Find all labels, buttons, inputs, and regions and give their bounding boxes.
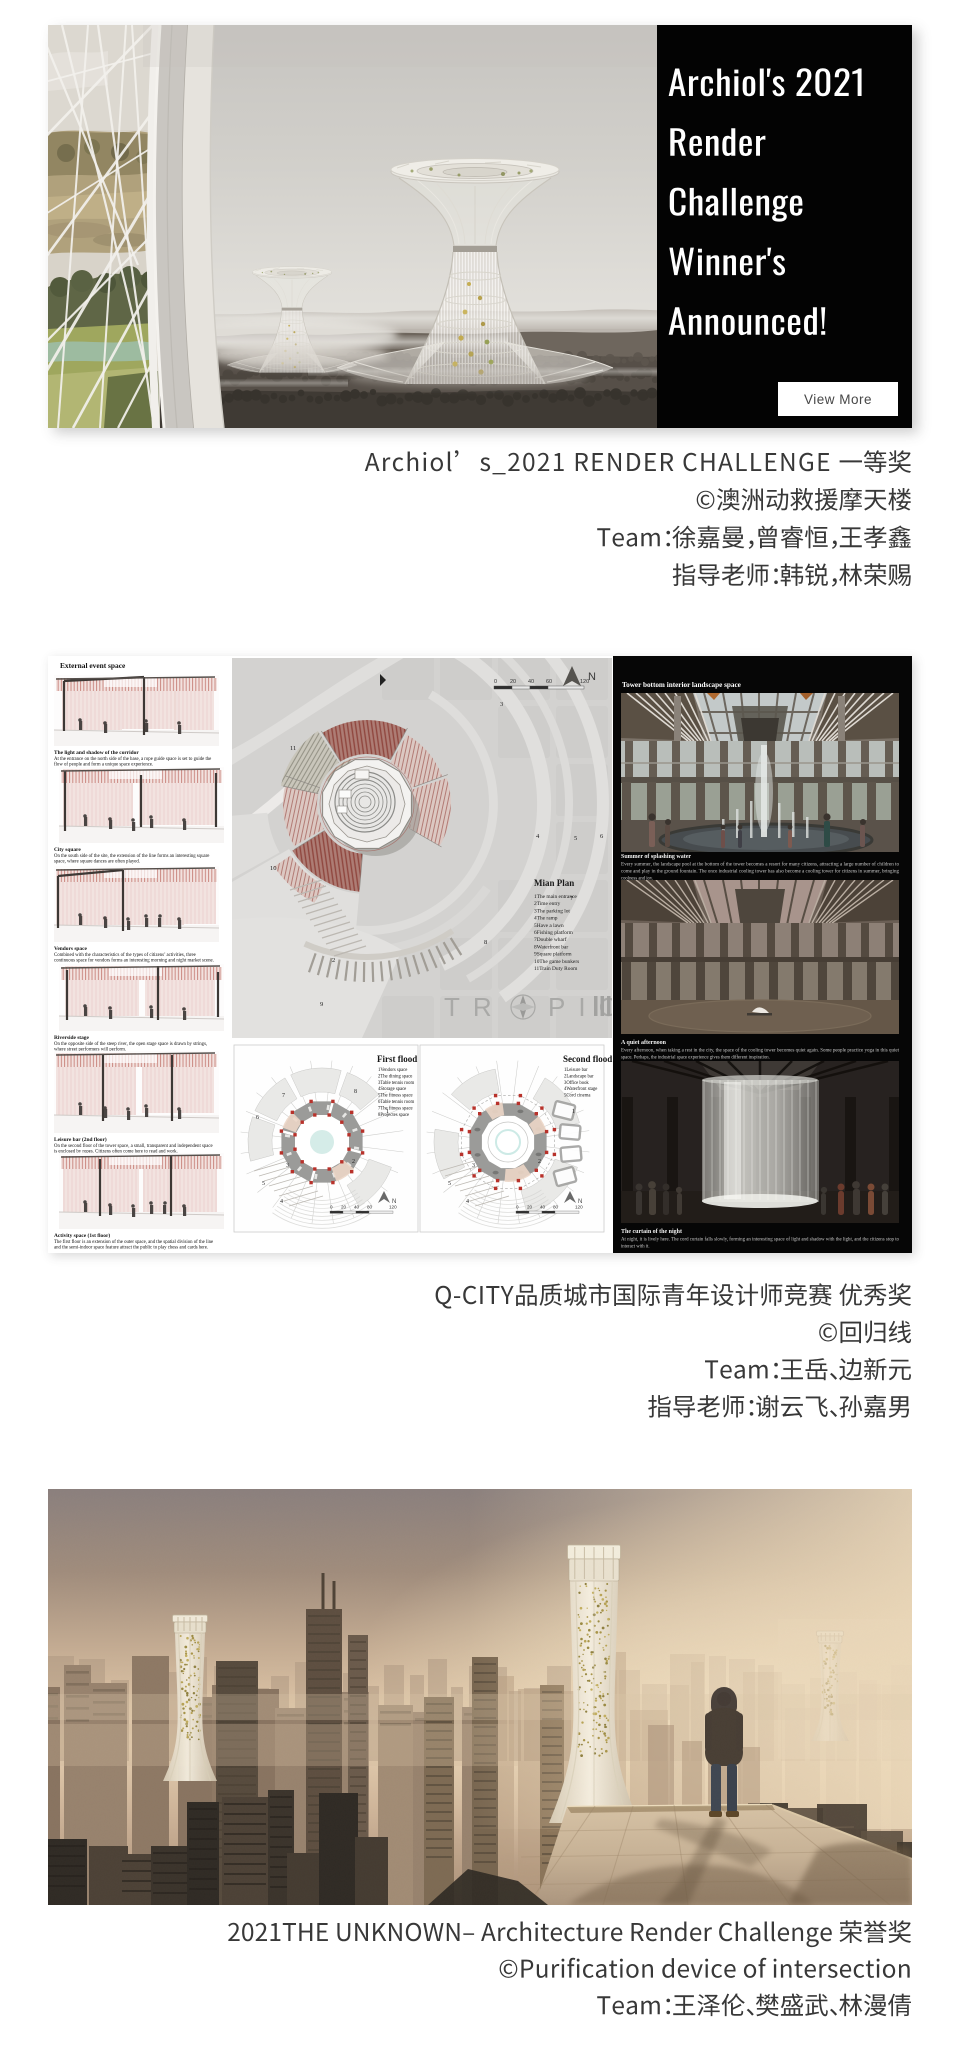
svg-text:On the south side of the site,: On the south side of the site, the exten… [54,854,209,859]
svg-text:6Fishing platform: 6Fishing platform [534,929,574,936]
svg-text:space. Perhaps, the industrial: space. Perhaps, the industrial space exp… [621,1056,770,1061]
svg-text:40: 40 [528,679,534,685]
svg-text:8Projectes space: 8Projectes space [378,1113,409,1118]
svg-text:5: 5 [574,835,577,842]
svg-text:1Leisure bar: 1Leisure bar [564,1068,588,1073]
svg-text:space, where square dances are: space, where square dances are often pla… [54,860,140,865]
svg-text:TR: TR [444,992,505,1022]
svg-text:5Cord cinema: 5Cord cinema [564,1094,591,1099]
svg-text:4: 4 [466,1199,469,1205]
svg-text:2: 2 [538,1159,541,1165]
svg-text:120: 120 [389,1205,397,1210]
svg-text:N: N [578,1199,582,1205]
svg-text:On the opposite side of the st: On the opposite side of the steep river,… [54,1042,207,1047]
svg-text:0: 0 [516,1205,519,1210]
svg-text:2: 2 [352,1159,355,1165]
svg-text:7The fitness space: 7The fitness space [378,1106,413,1111]
svg-text:continuous space for vendors f: continuous space for vendors forms an in… [54,959,214,964]
svg-text:1: 1 [386,1109,389,1115]
svg-text:4Storage space: 4Storage space [378,1087,406,1092]
svg-text:2Time entry: 2Time entry [534,901,561,907]
svg-text:2The dining space: 2The dining space [378,1074,412,1079]
svg-text:Mian Plan: Mian Plan [534,878,574,888]
svg-text:A quiet afternoon: A quiet afternoon [621,1040,667,1046]
svg-text:11Train Duty Room: 11Train Duty Room [534,966,578,972]
svg-text:Every summer, the landscape po: Every summer, the landscape pool at the … [621,863,900,868]
svg-text:2: 2 [332,957,335,964]
svg-text:interact with it.: interact with it. [621,1245,650,1250]
svg-text:City square: City square [54,847,81,853]
svg-text:120: 120 [580,679,589,685]
svg-text:flow of people and form a uniq: flow of people and form a unique space e… [54,763,153,768]
svg-text:20: 20 [527,1205,533,1210]
svg-text:40: 40 [540,1205,546,1210]
svg-text:3Office book: 3Office book [564,1081,589,1086]
svg-text:60: 60 [546,679,552,685]
svg-text:Vendors space: Vendors space [54,946,88,952]
svg-text:0: 0 [494,679,497,685]
svg-text:Second flood: Second flood [563,1054,612,1064]
svg-text:3Table tennis room: 3Table tennis room [378,1081,414,1086]
svg-text:20: 20 [341,1205,347,1210]
svg-text:10The game bunkers: 10The game bunkers [534,959,579,965]
svg-text:40: 40 [354,1205,360,1210]
svg-text:come and play in the ground fo: come and play in the ground fountain. Th… [621,870,900,875]
svg-text:At night, it is lively here. T: At night, it is lively here. The cord cu… [621,1238,900,1243]
svg-text:7Double wharf: 7Double wharf [534,936,567,943]
svg-text:3The parking lot: 3The parking lot [534,908,570,914]
svg-text:3: 3 [472,1163,475,1169]
svg-text:1: 1 [572,1109,575,1115]
svg-text:First flood: First flood [377,1054,417,1064]
svg-text:6Table tennis room: 6Table tennis room [378,1100,414,1105]
svg-text:5Have a lawn: 5Have a lawn [534,923,564,929]
svg-text:0: 0 [330,1205,333,1210]
svg-text:4: 4 [280,1199,283,1205]
svg-text:N: N [588,671,596,683]
svg-text:120: 120 [575,1205,583,1210]
svg-text:At the entrance on the north s: At the entrance on the north side of the… [54,757,211,762]
svg-text:Leisure bar (2nd floor): Leisure bar (2nd floor) [54,1136,107,1143]
svg-text:2Landscape bar: 2Landscape bar [564,1074,594,1079]
svg-text:Every afternoon, when taking a: Every afternoon, when taking a rest in t… [621,1049,900,1054]
svg-text:1Vendors space: 1Vendors space [378,1068,407,1073]
svg-text:5The fitness space: 5The fitness space [378,1094,413,1099]
svg-text:4The ramp: 4The ramp [534,916,558,922]
svg-text:5: 5 [448,1181,451,1187]
svg-text:4Waterfront stage: 4Waterfront stage [564,1087,597,1092]
svg-text:80: 80 [553,1205,559,1210]
svg-text:9Square platform: 9Square platform [534,951,572,958]
svg-text:and the semi-indoor space feat: and the semi-indoor space feature attrac… [54,1246,208,1251]
svg-text:3: 3 [500,701,503,708]
svg-text:The first floor is an extensio: The first floor is an extension of the o… [54,1240,213,1245]
svg-text:80: 80 [367,1205,373,1210]
svg-text:Riverside stage: Riverside stage [54,1035,89,1041]
svg-text:8Waterfront bar: 8Waterfront bar [534,943,568,950]
svg-text:3: 3 [286,1163,289,1169]
svg-text:The curtain of the night: The curtain of the night [621,1229,682,1235]
svg-text:8: 8 [354,1089,357,1095]
svg-text:Summer of splashing water: Summer of splashing water [621,854,691,860]
svg-text:Activity space (1st floor): Activity space (1st floor) [54,1232,110,1239]
svg-text:N: N [392,1199,396,1205]
svg-text:External event space: External event space [60,661,126,670]
svg-text:5: 5 [262,1181,265,1187]
svg-text:Combined with the characterist: Combined with the characteristics of the… [54,953,196,958]
svg-text:6: 6 [256,1115,259,1121]
svg-text:Tower bottom interior landscap: Tower bottom interior landscape space [622,681,741,689]
svg-text:7: 7 [282,1093,285,1099]
svg-text:11: 11 [290,745,296,752]
svg-text:20: 20 [510,679,516,685]
svg-text:8: 8 [484,939,487,946]
svg-text:9: 9 [320,1001,323,1008]
svg-text:10: 10 [270,865,277,872]
svg-text:The light and shadow of the co: The light and shadow of the corridor [54,750,139,756]
svg-text:On the second floor of the tow: On the second floor of the tower space, … [54,1144,213,1149]
